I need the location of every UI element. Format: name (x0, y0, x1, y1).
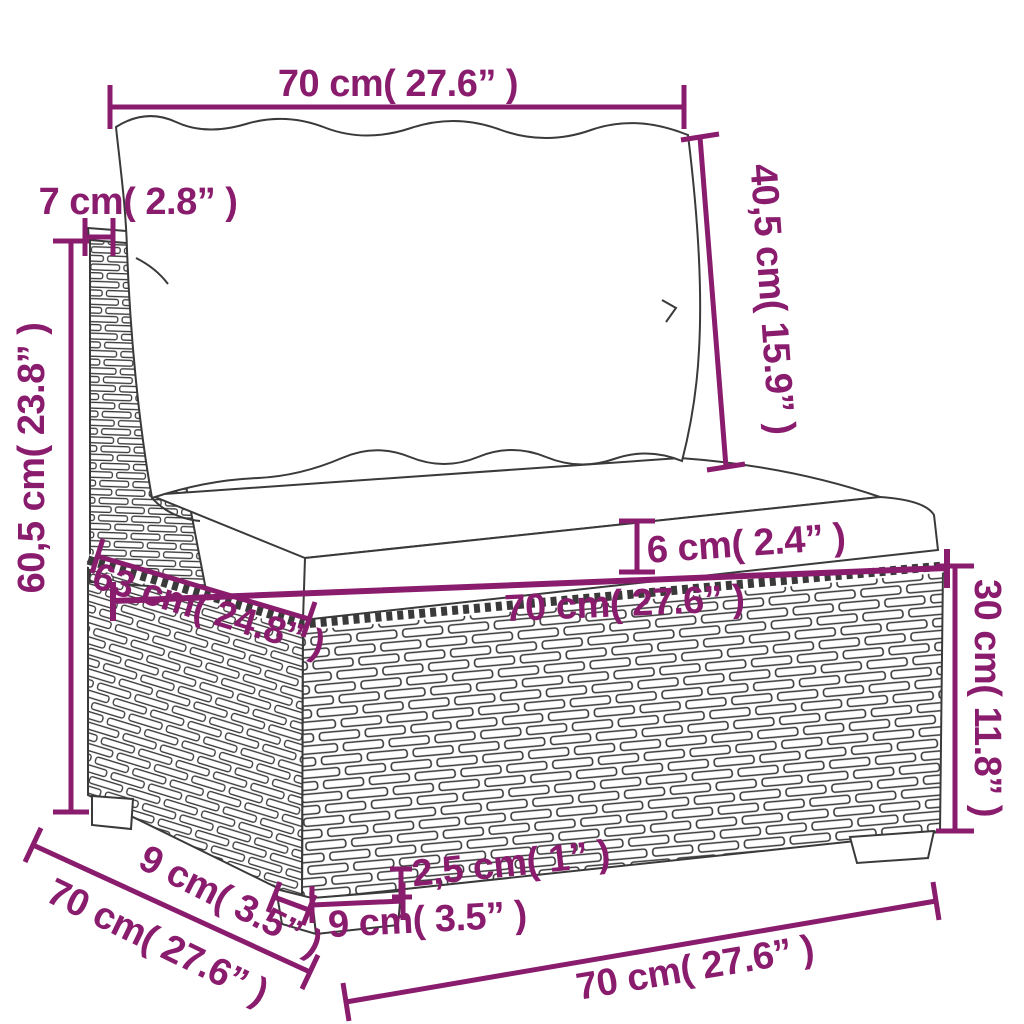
dim-top-width-label: 70 cm( 27.6” ) (278, 63, 518, 105)
dim-back-post-width-label: 7 cm( 2.8” ) (39, 181, 238, 223)
dimension-diagram-svg: 70 cm( 27.6” ) 7 cm( 2.8” ) 60,5 cm( 23.… (0, 0, 1024, 1024)
dim-leg-width-label: 9 cm( 3.5” ) (327, 894, 528, 946)
dim-total-height-label: 60,5 cm( 23.8” ) (11, 323, 53, 594)
dim-total-height: 60,5 cm( 23.8” ) (11, 241, 89, 812)
dim-base-height-label: 30 cm( 11.8” ) (966, 579, 1008, 817)
leg-back-left (92, 796, 133, 829)
dim-base-height: 30 cm( 11.8” ) (936, 566, 1008, 831)
back-cushion (116, 116, 700, 498)
diagram-canvas: 70 cm( 27.6” ) 7 cm( 2.8” ) 60,5 cm( 23.… (0, 0, 1024, 1024)
leg-front-right (850, 831, 934, 863)
dim-top-width: 70 cm( 27.6” ) (110, 63, 684, 129)
dim-total-height-line (53, 241, 89, 812)
dim-back-cushion-height-label: 40,5 cm( 15.9” ) (742, 163, 803, 436)
